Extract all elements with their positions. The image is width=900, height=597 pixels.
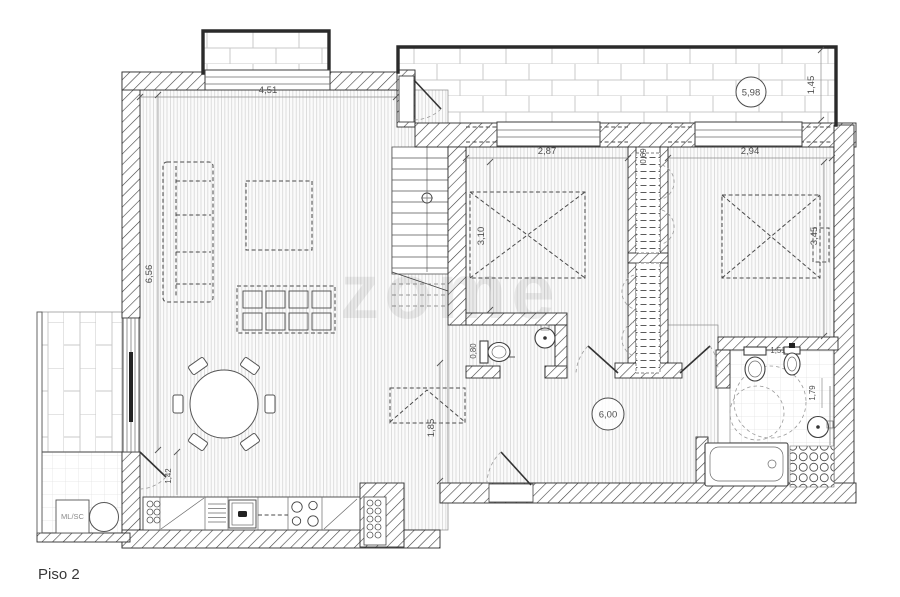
- bathtub: [705, 443, 788, 486]
- svg-text:1,85: 1,85: [426, 419, 437, 438]
- floor-plan-page: ML/SC 4,51 6,56 1,42 2,87 2,94: [0, 0, 900, 597]
- dim-wc-width: 0,80: [469, 343, 478, 359]
- balcony-bottom-wall: [37, 533, 130, 542]
- svg-text:3,45: 3,45: [809, 227, 820, 246]
- wc-toilet-bowl: [488, 343, 510, 362]
- wc-bottom-wall-right: [545, 366, 567, 378]
- right-wall: [834, 125, 854, 497]
- rear-balcony-floor: [42, 312, 122, 452]
- floor-plan-drawing: ML/SC 4,51 6,56 1,42 2,87 2,94: [0, 0, 900, 597]
- shower-tiles: [790, 446, 834, 487]
- svg-text:0,80: 0,80: [469, 343, 478, 359]
- doorway-floor: [567, 313, 628, 327]
- svg-text:2,94: 2,94: [741, 146, 760, 157]
- svg-text:5,98: 5,98: [742, 88, 761, 99]
- svg-text:6,00: 6,00: [599, 410, 618, 421]
- wardrobe-mid-wall: [628, 253, 668, 263]
- hall-area-badge: 6,00: [592, 398, 624, 430]
- svg-text:2,87: 2,87: [538, 146, 557, 157]
- laundry: ML/SC: [56, 500, 119, 533]
- svg-text:1,42: 1,42: [164, 468, 173, 483]
- terrace-floor: [398, 47, 836, 125]
- left-wall-upper: [122, 72, 140, 318]
- svg-text:4,51: 4,51: [259, 85, 278, 96]
- dim-bath-width: 1,51: [770, 346, 785, 355]
- bath-bidet: [784, 343, 800, 375]
- floor-title: Piso 2: [38, 566, 80, 583]
- svg-text:1,51: 1,51: [770, 346, 785, 355]
- kitchen-sink: [229, 500, 256, 528]
- svg-text:1,45: 1,45: [806, 76, 817, 95]
- wc-bottom-wall-left: [466, 366, 500, 378]
- bathroom-left-wall: [716, 350, 730, 388]
- bath-toilet: [744, 347, 766, 381]
- svg-text:3,10: 3,10: [476, 227, 487, 246]
- svg-text:0,69: 0,69: [639, 148, 648, 163]
- terrace-area-badge: 5,98: [736, 77, 766, 107]
- svg-text:6,56: 6,56: [144, 265, 155, 284]
- dim-closet-depth: 0,69: [639, 148, 648, 163]
- laundry-label: ML/SC: [61, 512, 85, 521]
- svg-text:1,79: 1,79: [808, 385, 817, 400]
- watermark: zome: [340, 247, 559, 335]
- shaft-bottles: [364, 497, 386, 545]
- balcony-left-wall: [37, 312, 42, 533]
- small-balcony-floor: [203, 31, 329, 73]
- wc-toilet-tank: [480, 341, 488, 363]
- water-heater: [90, 503, 119, 532]
